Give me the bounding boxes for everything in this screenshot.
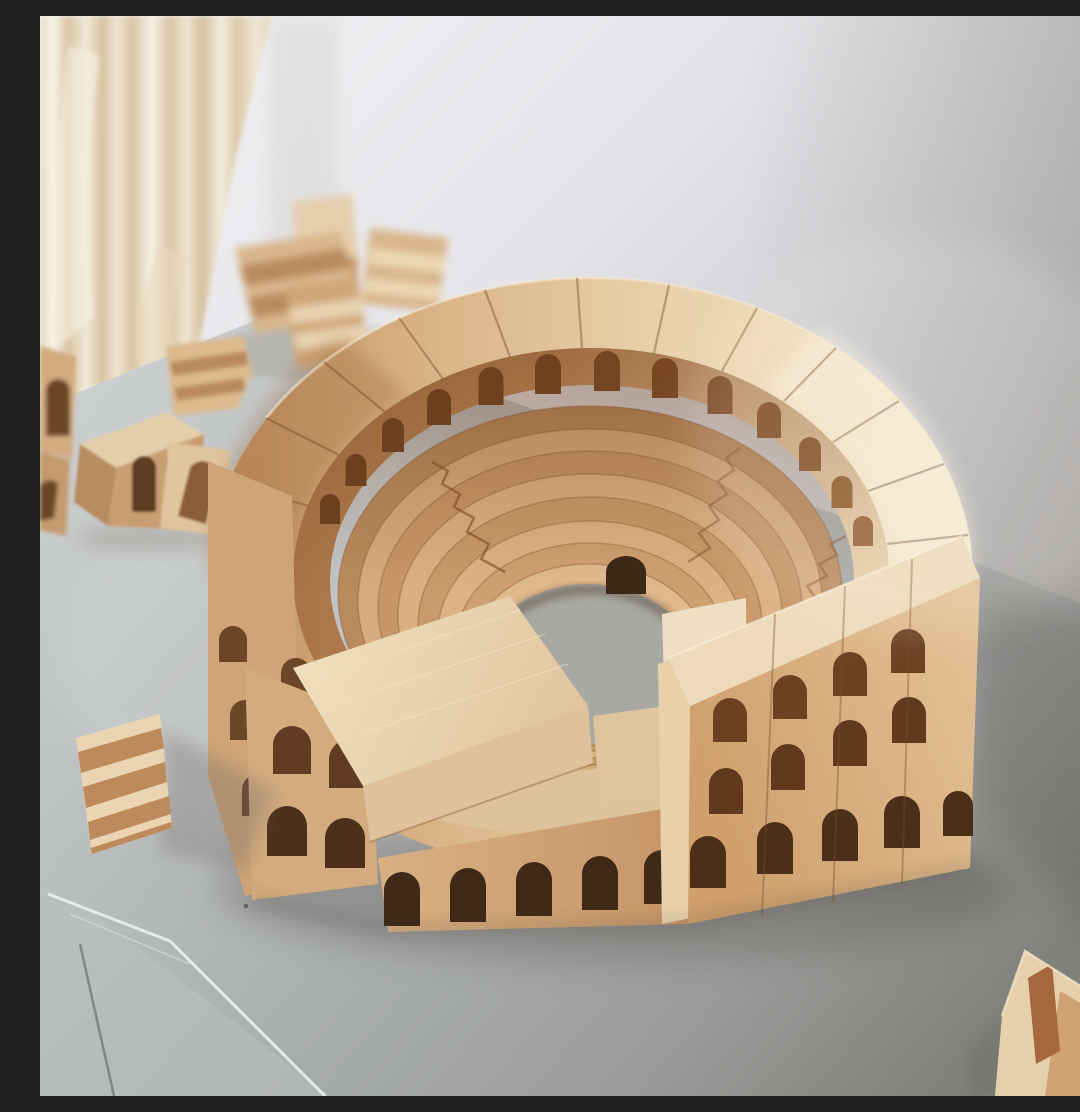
- facade-arch: [833, 652, 867, 696]
- arena-entrance-arch: [606, 556, 646, 594]
- scene-canvas: [40, 16, 1080, 1096]
- facade-arch: [690, 836, 726, 888]
- facade-arch: [773, 675, 807, 719]
- facade-arch: [884, 796, 920, 848]
- facade-arch: [267, 806, 307, 856]
- ground-arch: [516, 862, 552, 916]
- facade-arch: [713, 698, 747, 742]
- arch-opening: [132, 456, 156, 512]
- ground-arch: [582, 856, 618, 910]
- facade-arch: [273, 726, 311, 774]
- facade-arch: [219, 626, 247, 662]
- facade-arch: [822, 809, 858, 861]
- facade-arch: [771, 744, 805, 790]
- ground-arch: [384, 872, 420, 926]
- facade-arch: [943, 791, 973, 836]
- stair-block-bg-right: [362, 228, 448, 312]
- scene-photo: [40, 16, 1080, 1096]
- facade-arch: [325, 818, 365, 868]
- facade-arch: [892, 697, 926, 743]
- stair-block-left: [166, 336, 252, 416]
- ground-arch: [450, 868, 486, 922]
- facade-arch: [709, 768, 743, 814]
- inner-front-block: [593, 706, 668, 806]
- facade-arch: [757, 822, 793, 874]
- colosseum-model: [208, 236, 1080, 960]
